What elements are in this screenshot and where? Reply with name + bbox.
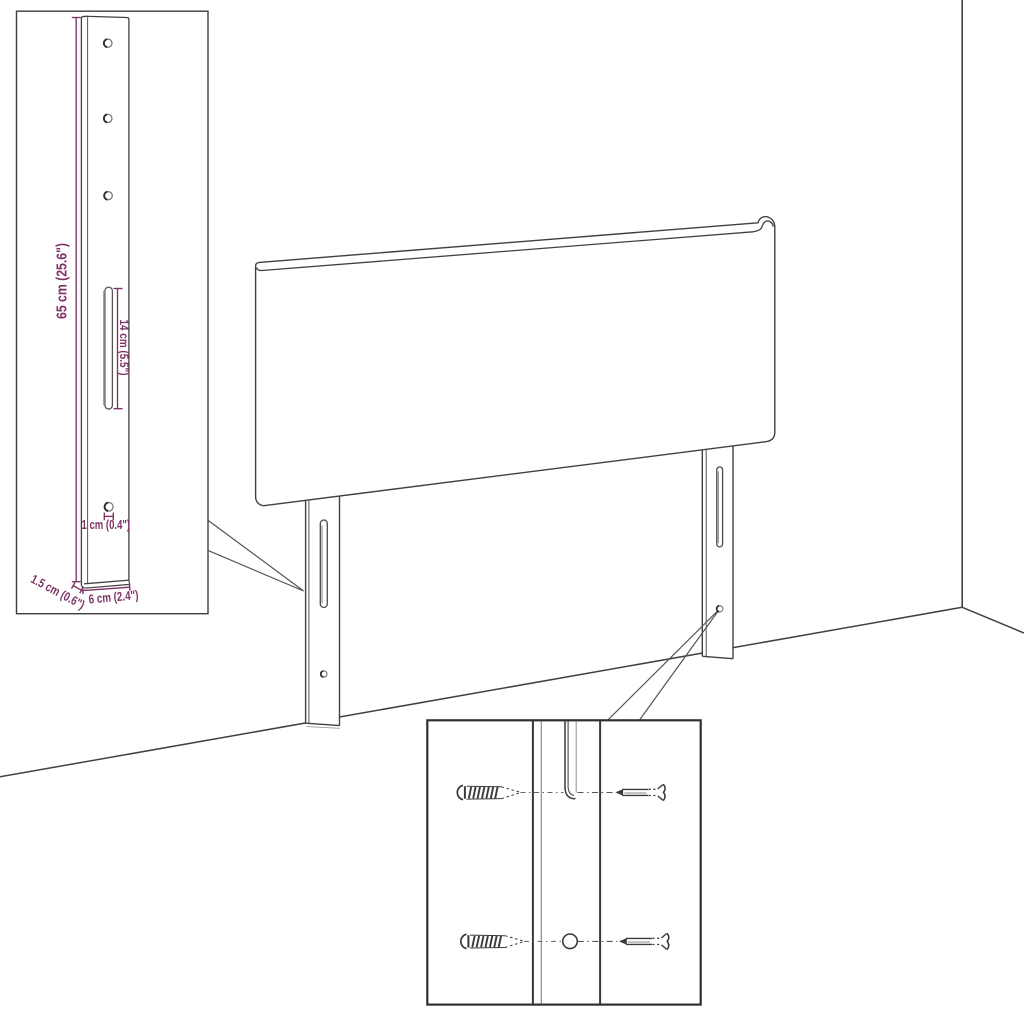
svg-text:1 cm (0.4"): 1 cm (0.4") bbox=[82, 518, 131, 532]
svg-text:65 cm (25.6"): 65 cm (25.6") bbox=[53, 243, 70, 319]
svg-text:14 cm (5.5"): 14 cm (5.5") bbox=[117, 320, 131, 376]
